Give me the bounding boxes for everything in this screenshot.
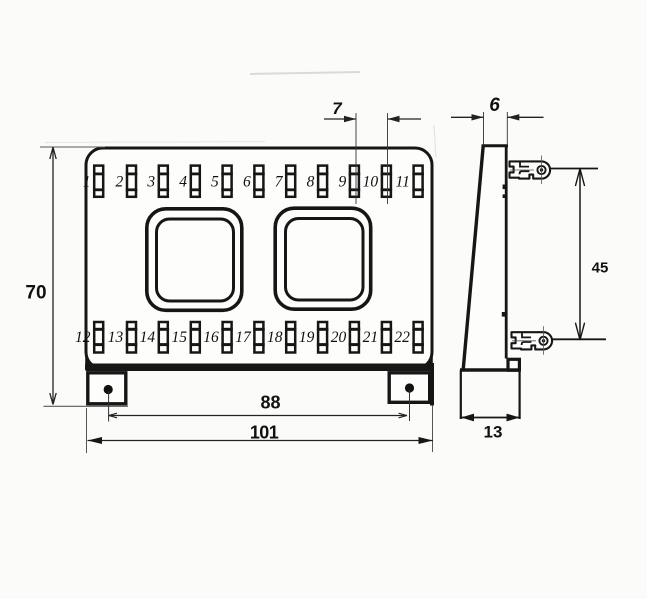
svg-text:22: 22: [394, 329, 410, 346]
svg-text:18: 18: [267, 329, 283, 346]
svg-text:45: 45: [592, 260, 609, 277]
svg-text:2: 2: [116, 174, 124, 191]
svg-text:12: 12: [75, 329, 91, 346]
svg-text:10: 10: [363, 174, 379, 191]
svg-text:1: 1: [83, 174, 91, 191]
svg-text:14: 14: [140, 329, 156, 346]
svg-text:7: 7: [275, 174, 284, 191]
svg-text:19: 19: [299, 329, 315, 346]
svg-text:20: 20: [331, 329, 347, 346]
svg-text:88: 88: [260, 393, 280, 413]
svg-text:9: 9: [338, 174, 346, 191]
svg-text:8: 8: [307, 174, 315, 191]
svg-text:70: 70: [25, 283, 46, 304]
svg-text:3: 3: [146, 174, 155, 191]
svg-text:5: 5: [211, 174, 219, 191]
svg-text:13: 13: [108, 329, 124, 346]
svg-text:7: 7: [332, 99, 343, 118]
svg-text:11: 11: [396, 174, 410, 191]
svg-text:6: 6: [243, 174, 251, 191]
svg-text:21: 21: [363, 329, 379, 346]
svg-text:17: 17: [235, 329, 252, 346]
svg-text:15: 15: [172, 329, 188, 346]
svg-text:13: 13: [484, 423, 503, 442]
svg-text:101: 101: [250, 423, 279, 443]
svg-text:4: 4: [179, 174, 187, 191]
svg-text:16: 16: [203, 329, 219, 346]
svg-text:6: 6: [489, 95, 500, 116]
